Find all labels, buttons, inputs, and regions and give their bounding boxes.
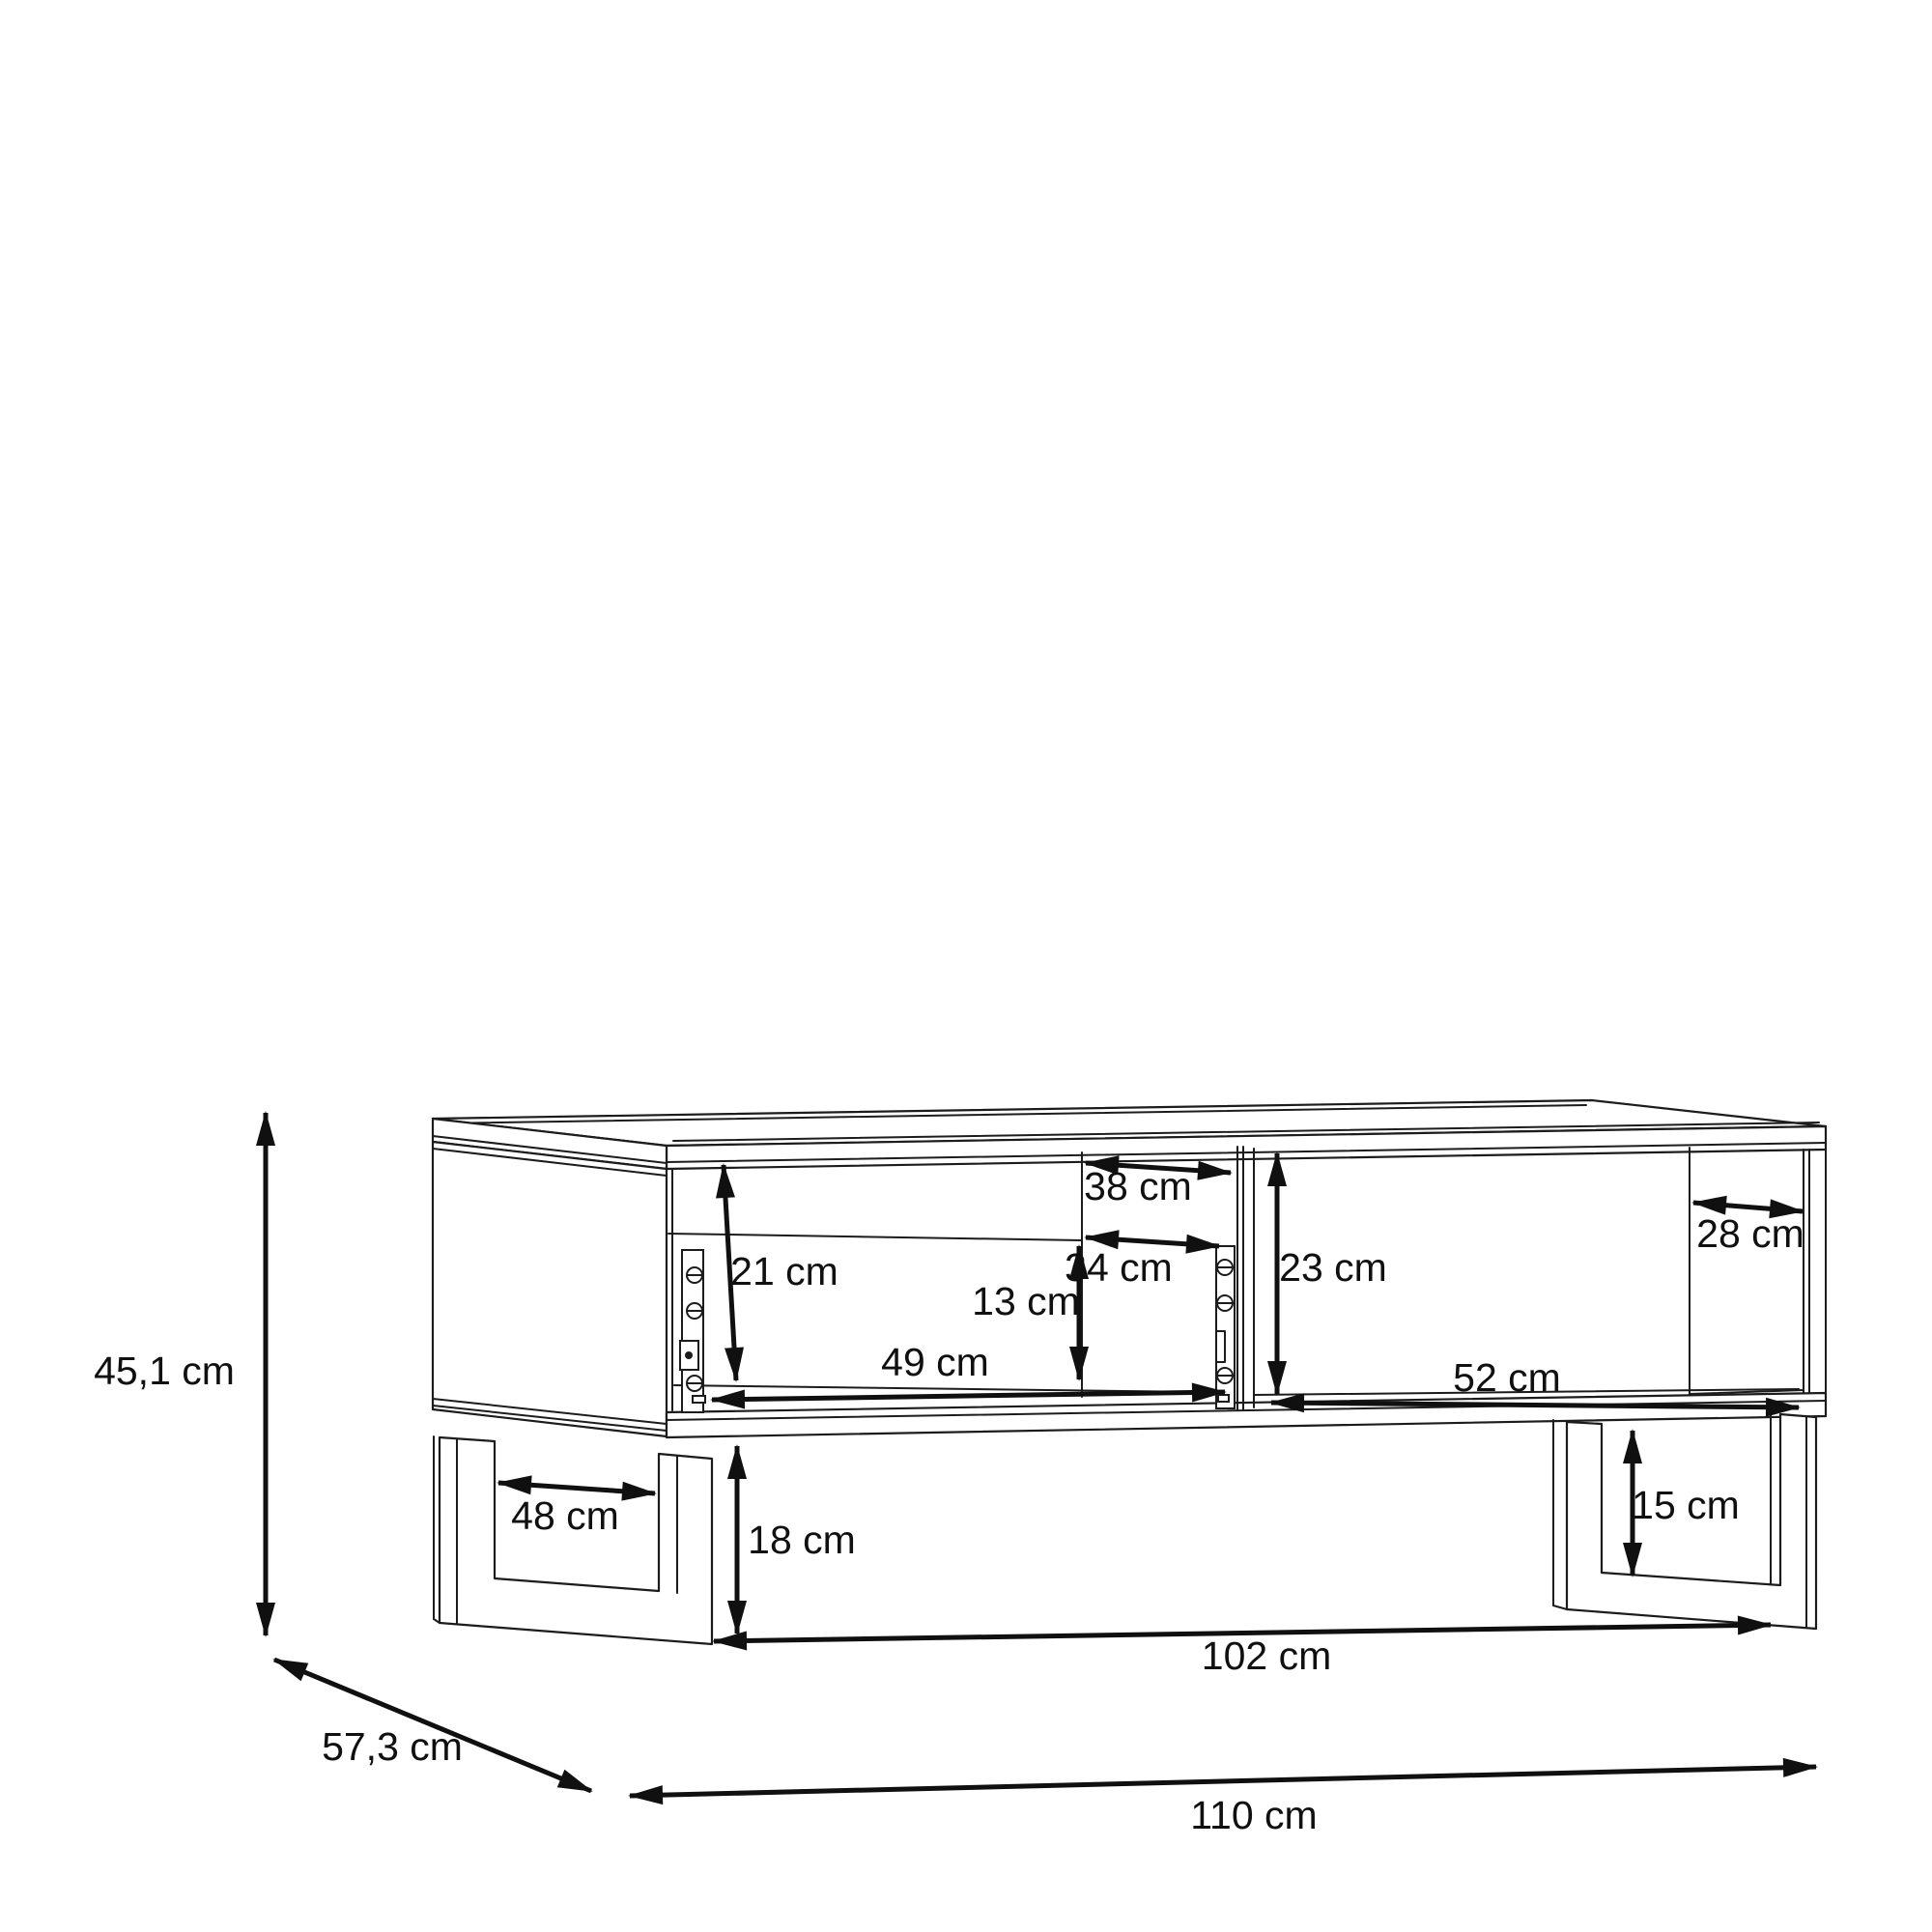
dim-overall-height-label: 45,1 cm: [94, 1349, 235, 1393]
dim-overall-width-arrow: [630, 1767, 1816, 1796]
floor-edge-left: [674, 1385, 1203, 1392]
dim-base-span-label: 102 cm: [1202, 1634, 1331, 1678]
dim-leg-clearance-label: 18 cm: [748, 1518, 856, 1562]
dim-leg-inner-width: 48 cm: [498, 1483, 655, 1538]
dim-right-opening-height: 23 cm: [1277, 1153, 1387, 1394]
dim-left-compartment-width-arrow: [712, 1392, 1225, 1400]
dim-back-opening-width: 38 cm: [1084, 1163, 1231, 1208]
drawing-canvas: 45,1 cm 57,3 cm 110 cm 102 cm 18 cm 48 c…: [0, 0, 1932, 1932]
middle-drawer-rail: [1216, 1246, 1235, 1408]
dim-right-side-depth: 28 cm: [1693, 1203, 1804, 1256]
dim-overall-width-label: 110 cm: [1190, 1793, 1317, 1837]
furniture-technical-drawing: 45,1 cm 57,3 cm 110 cm 102 cm 18 cm 48 c…: [0, 0, 1932, 1932]
dim-left-opening-height-label: 21 cm: [730, 1249, 838, 1293]
dim-overall-depth: 57,3 cm: [274, 1660, 591, 1791]
dim-right-side-depth-label: 28 cm: [1696, 1211, 1804, 1256]
left-rail-bracket-pin: [685, 1351, 693, 1359]
left-side-panel: [433, 1142, 667, 1436]
right-leg-back-bottom: [1553, 1605, 1567, 1609]
drawer-back-top-edge: [668, 1234, 1082, 1240]
left-leg-frame: [440, 1437, 712, 1644]
dim-overall-height: 45,1 cm: [94, 1113, 266, 1635]
dim-leg-inner-height-label: 15 cm: [1632, 1483, 1740, 1527]
dim-left-compartment-width: 49 cm: [712, 1340, 1225, 1400]
dim-leg-inner-width-label: 48 cm: [511, 1493, 619, 1538]
dim-right-opening-height-label: 23 cm: [1279, 1245, 1387, 1290]
dim-drawer-opening-width: 34 cm: [1065, 1237, 1219, 1290]
dim-left-compartment-width-label: 49 cm: [881, 1340, 989, 1384]
left-rail-clip: [693, 1396, 705, 1403]
dim-leg-inner-height: 15 cm: [1632, 1431, 1740, 1576]
dim-left-opening-height: 21 cm: [724, 1165, 838, 1380]
left-drawer-rail: [680, 1250, 705, 1412]
middle-rail-clip: [1218, 1395, 1229, 1402]
dim-overall-depth-label: 57,3 cm: [322, 1724, 463, 1769]
left-leg: [434, 1436, 712, 1644]
dim-right-compartment-width-label: 52 cm: [1453, 1355, 1561, 1400]
dim-leg-clearance-height: 18 cm: [737, 1446, 856, 1634]
dim-back-opening-width-label: 38 cm: [1084, 1164, 1192, 1208]
dim-drawer-front-height-label: 13 cm: [972, 1279, 1080, 1323]
dim-overall-width: 110 cm: [630, 1767, 1816, 1837]
dim-right-side-depth-arrow: [1693, 1203, 1803, 1211]
dim-leg-inner-width-arrow: [498, 1483, 655, 1493]
dim-base-span: 102 cm: [714, 1625, 1771, 1678]
